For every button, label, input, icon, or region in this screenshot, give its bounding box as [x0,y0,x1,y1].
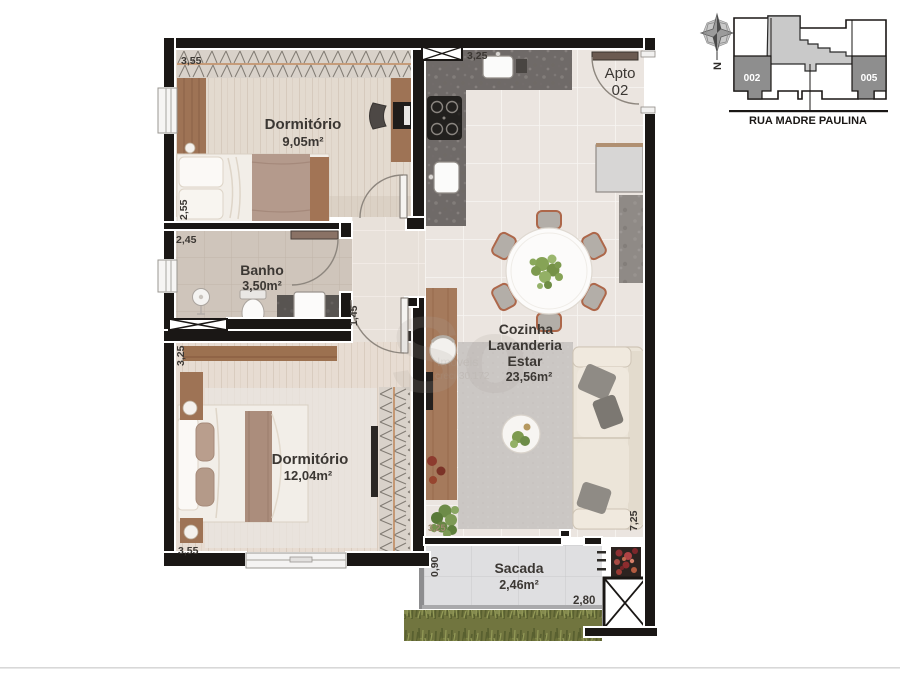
svg-text:7,25: 7,25 [628,510,640,531]
svg-text:3,55: 3,55 [178,545,199,557]
svg-text:1,45: 1,45 [348,305,360,326]
svg-text:creci 30.172: creci 30.172 [435,371,490,382]
svg-text:3,25: 3,25 [428,523,446,533]
svg-text:23,56m²: 23,56m² [506,370,553,384]
svg-text:2,55: 2,55 [178,199,190,220]
svg-text:3,25: 3,25 [467,50,488,62]
svg-text:005: 005 [861,73,878,84]
svg-text:Imóveis: Imóveis [437,355,478,369]
svg-text:2,46m²: 2,46m² [499,578,539,592]
svg-text:3,55: 3,55 [181,55,202,67]
svg-text:Sacada: Sacada [494,560,543,576]
svg-text:3,50m²: 3,50m² [242,279,282,293]
svg-text:Estar: Estar [507,353,543,369]
svg-text:2,80: 2,80 [573,595,595,607]
svg-text:Lavanderia: Lavanderia [488,337,562,353]
svg-text:3,25: 3,25 [175,345,187,366]
svg-text:N: N [712,62,724,70]
svg-text:Banho: Banho [240,262,284,278]
svg-text:Dormitório: Dormitório [272,451,349,468]
svg-text:12,04m²: 12,04m² [284,468,333,483]
svg-text:RUA MADRE PAULINA: RUA MADRE PAULINA [749,115,867,127]
svg-text:Apto: Apto [605,65,636,82]
svg-text:0,90: 0,90 [429,556,441,577]
svg-text:002: 002 [744,73,761,84]
svg-text:2,45: 2,45 [176,234,197,246]
svg-text:Dormitório: Dormitório [265,116,342,133]
svg-text:Cozinha: Cozinha [499,321,554,337]
svg-text:02: 02 [612,82,629,99]
svg-text:9,05m²: 9,05m² [282,134,324,149]
